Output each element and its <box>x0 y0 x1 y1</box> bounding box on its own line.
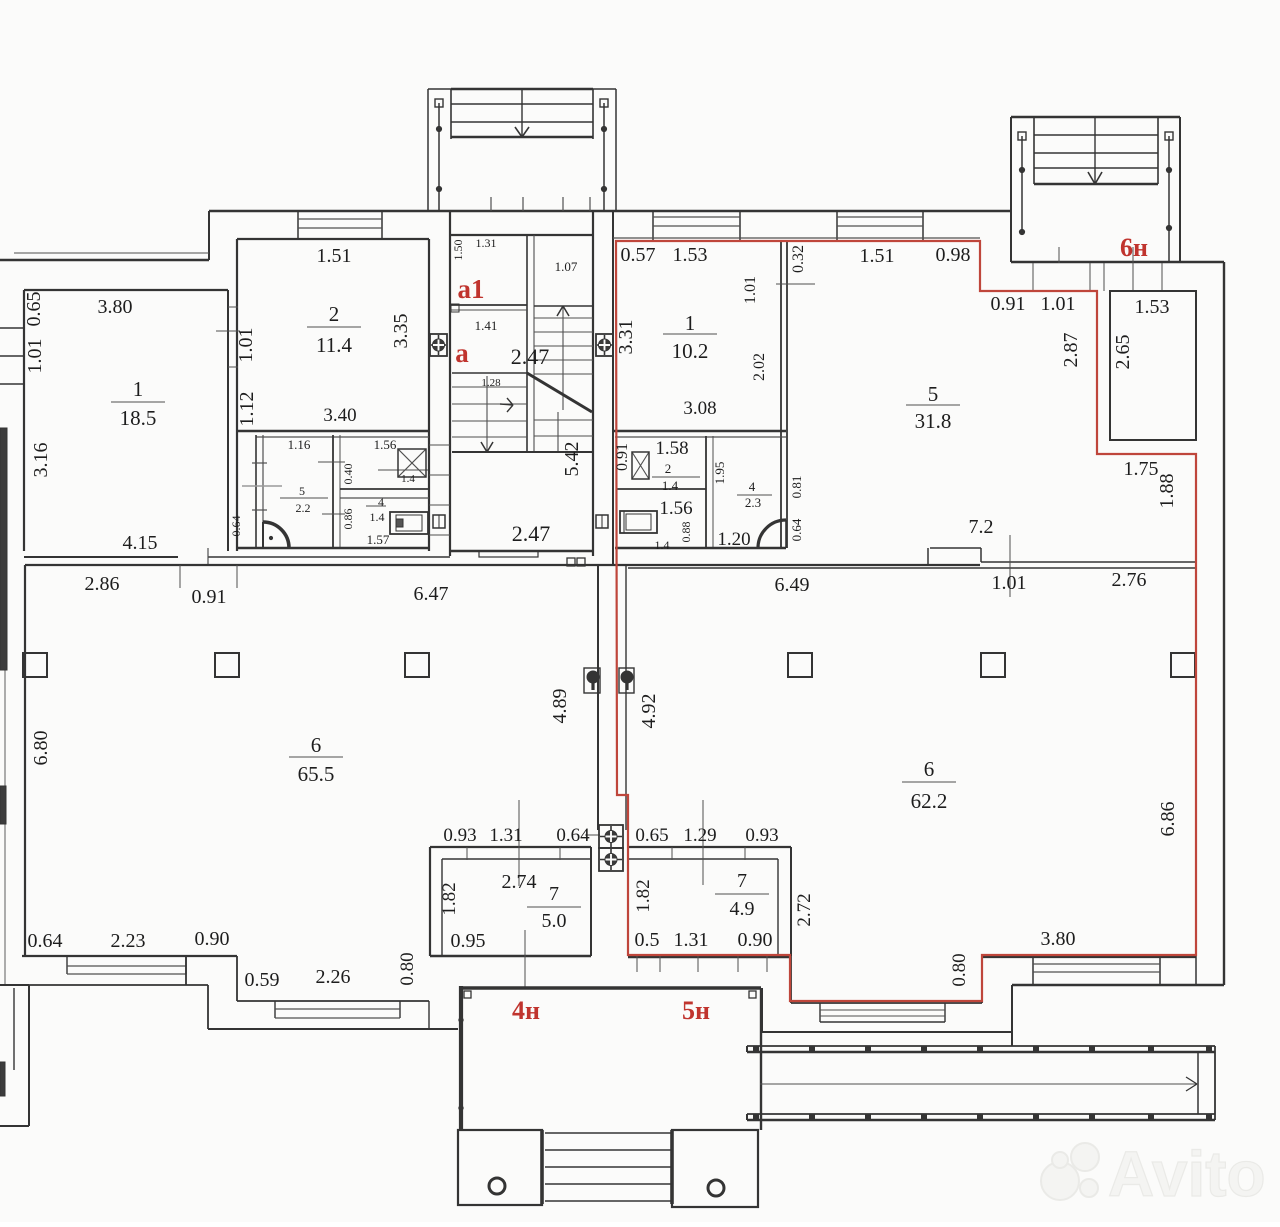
svg-text:1.51: 1.51 <box>860 245 895 267</box>
svg-text:1.95: 1.95 <box>712 462 727 485</box>
svg-text:0.91: 0.91 <box>192 586 227 608</box>
svg-text:0.98: 0.98 <box>936 244 971 266</box>
svg-text:5: 5 <box>928 382 939 406</box>
svg-text:2.3: 2.3 <box>745 495 761 510</box>
svg-text:0.91: 0.91 <box>991 293 1026 315</box>
svg-text:10.2: 10.2 <box>672 339 709 363</box>
svg-text:62.2: 62.2 <box>911 789 948 813</box>
svg-text:65.5: 65.5 <box>298 762 335 786</box>
svg-text:1.4: 1.4 <box>662 478 679 493</box>
svg-text:3.80: 3.80 <box>1041 928 1076 950</box>
svg-text:0.80: 0.80 <box>949 953 970 986</box>
svg-text:1.4: 1.4 <box>370 510 385 524</box>
svg-text:2.65: 2.65 <box>1112 335 1134 370</box>
svg-text:1: 1 <box>685 311 696 335</box>
svg-text:5н: 5н <box>682 996 710 1025</box>
svg-text:2.86: 2.86 <box>85 573 120 595</box>
svg-text:1.88: 1.88 <box>1156 474 1178 509</box>
svg-text:6: 6 <box>924 757 935 781</box>
svg-text:0.91: 0.91 <box>614 443 631 471</box>
svg-text:0.64: 0.64 <box>789 518 804 541</box>
svg-text:7: 7 <box>737 870 747 892</box>
svg-text:0.57: 0.57 <box>621 244 656 266</box>
svg-text:0.93: 0.93 <box>443 825 476 846</box>
svg-text:4: 4 <box>378 495 384 509</box>
svg-text:11.4: 11.4 <box>316 333 352 357</box>
svg-text:1.51: 1.51 <box>317 245 352 267</box>
svg-text:4.89: 4.89 <box>549 689 571 724</box>
svg-text:0.80: 0.80 <box>397 952 418 985</box>
svg-text:1.53: 1.53 <box>1135 296 1170 318</box>
svg-text:0.90: 0.90 <box>738 929 773 951</box>
svg-text:0.59: 0.59 <box>245 969 280 991</box>
svg-text:0.65: 0.65 <box>23 292 45 327</box>
svg-text:0.81: 0.81 <box>789 476 804 499</box>
svg-text:3.31: 3.31 <box>615 320 637 355</box>
svg-text:5.42: 5.42 <box>561 442 583 477</box>
svg-text:0.5: 0.5 <box>635 929 660 951</box>
svg-text:0.32: 0.32 <box>790 245 807 273</box>
svg-text:1.58: 1.58 <box>655 438 688 459</box>
svg-text:1.57: 1.57 <box>367 532 390 547</box>
svg-text:1.29: 1.29 <box>683 825 716 846</box>
svg-text:2: 2 <box>329 302 340 326</box>
svg-text:1.41: 1.41 <box>475 318 498 333</box>
svg-text:0.64: 0.64 <box>556 825 590 846</box>
svg-text:0.65: 0.65 <box>635 825 668 846</box>
svg-text:1.01: 1.01 <box>24 339 46 374</box>
svg-text:0.95: 0.95 <box>451 930 486 952</box>
svg-text:3.35: 3.35 <box>390 314 412 349</box>
svg-text:1.01: 1.01 <box>235 328 257 363</box>
svg-text:0.93: 0.93 <box>745 825 778 846</box>
svg-text:2.87: 2.87 <box>1060 333 1082 368</box>
svg-text:2.2: 2.2 <box>296 501 311 515</box>
svg-text:2: 2 <box>665 461 672 476</box>
svg-text:1.20: 1.20 <box>717 529 750 550</box>
svg-text:1.4: 1.4 <box>655 538 670 552</box>
svg-text:18.5: 18.5 <box>120 406 157 430</box>
svg-text:6: 6 <box>311 733 322 757</box>
svg-text:2.74: 2.74 <box>502 871 537 893</box>
svg-text:6.80: 6.80 <box>30 731 52 766</box>
svg-text:1.53: 1.53 <box>673 244 708 266</box>
svg-text:1.01: 1.01 <box>992 572 1027 594</box>
svg-text:1.31: 1.31 <box>489 825 522 846</box>
svg-text:1.07: 1.07 <box>555 259 578 274</box>
svg-text:2.47: 2.47 <box>511 344 550 369</box>
svg-text:0.64: 0.64 <box>229 516 243 537</box>
svg-text:1.4: 1.4 <box>401 473 415 485</box>
svg-text:а: а <box>455 338 469 368</box>
svg-text:4.15: 4.15 <box>123 532 158 554</box>
svg-text:4: 4 <box>749 479 756 494</box>
svg-text:1.12: 1.12 <box>236 392 258 427</box>
svg-text:3.16: 3.16 <box>30 443 52 478</box>
svg-text:2.72: 2.72 <box>794 893 815 926</box>
svg-text:1.56: 1.56 <box>374 437 397 452</box>
svg-text:31.8: 31.8 <box>915 409 952 433</box>
svg-text:2.02: 2.02 <box>751 353 768 381</box>
svg-text:0.64: 0.64 <box>28 930 63 952</box>
svg-text:а1: а1 <box>458 274 485 304</box>
svg-text:1.01: 1.01 <box>1041 293 1076 315</box>
svg-text:6н: 6н <box>1120 233 1148 262</box>
svg-text:5.0: 5.0 <box>542 910 567 932</box>
svg-text:2.76: 2.76 <box>1112 569 1147 591</box>
svg-text:2.47: 2.47 <box>512 521 551 546</box>
svg-text:Avito: Avito <box>1108 1138 1266 1210</box>
svg-text:2.26: 2.26 <box>316 966 351 988</box>
svg-text:0.88: 0.88 <box>679 522 693 543</box>
svg-text:1.31: 1.31 <box>476 236 497 250</box>
svg-text:0.86: 0.86 <box>341 509 355 530</box>
svg-text:7.2: 7.2 <box>969 516 994 538</box>
svg-text:2.23: 2.23 <box>111 930 146 952</box>
svg-text:0.40: 0.40 <box>341 464 355 485</box>
svg-text:6.49: 6.49 <box>775 574 810 596</box>
svg-text:1.50: 1.50 <box>451 240 465 261</box>
svg-text:1.28: 1.28 <box>481 377 501 389</box>
svg-text:1.31: 1.31 <box>674 929 709 951</box>
svg-text:1.56: 1.56 <box>659 498 692 519</box>
svg-text:1.01: 1.01 <box>742 276 759 304</box>
svg-text:4.9: 4.9 <box>730 898 755 920</box>
svg-text:1.16: 1.16 <box>288 437 311 452</box>
svg-text:6.86: 6.86 <box>1157 802 1179 837</box>
svg-text:1: 1 <box>133 377 144 401</box>
svg-text:6.47: 6.47 <box>414 583 449 605</box>
svg-text:3.80: 3.80 <box>98 296 133 318</box>
svg-text:3.40: 3.40 <box>323 405 356 426</box>
svg-text:3.08: 3.08 <box>683 398 716 419</box>
svg-text:1.82: 1.82 <box>633 879 654 912</box>
svg-text:4н: 4н <box>512 996 540 1025</box>
svg-text:7: 7 <box>549 883 559 905</box>
svg-text:0.90: 0.90 <box>195 928 230 950</box>
svg-text:5: 5 <box>299 484 305 498</box>
svg-text:1.75: 1.75 <box>1124 458 1159 480</box>
svg-text:4.92: 4.92 <box>638 694 660 729</box>
svg-text:1.82: 1.82 <box>439 882 460 915</box>
